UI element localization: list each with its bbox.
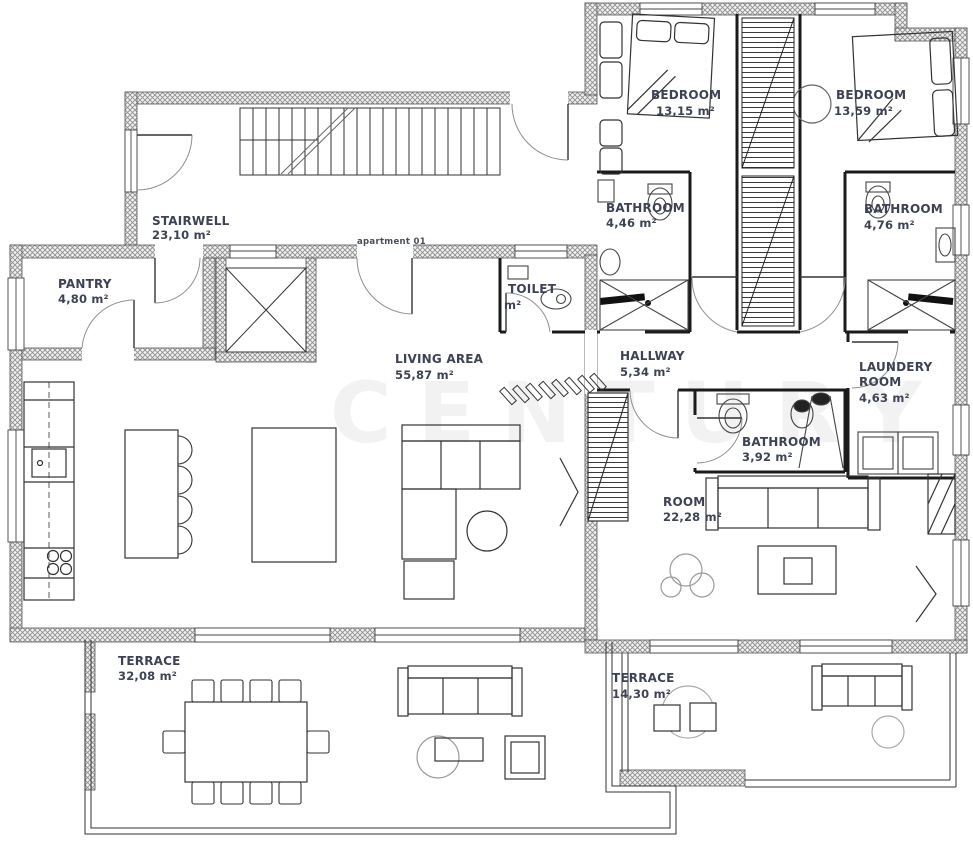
floor-plan: CENTURY — [0, 0, 973, 852]
label-terrace-2-area: 14,30 m² — [612, 687, 671, 701]
bar-stools — [178, 436, 192, 554]
wall-elevator-left — [216, 258, 226, 362]
terrace-2-furniture — [654, 664, 912, 748]
staircase — [240, 108, 500, 175]
kitchen — [24, 382, 192, 600]
label-bathroom-3-name: BATHROOM — [742, 435, 821, 449]
label-pantry-name: PANTRY — [58, 277, 112, 291]
terrace-1-furniture — [163, 666, 545, 804]
wall-terrace-stub-1 — [85, 642, 95, 692]
label-bedroom-2-name: BEDROOM — [836, 88, 906, 102]
tv — [560, 458, 578, 526]
label-bedroom-1-area: 13,15 m² — [656, 104, 715, 118]
apartment-label: apartment 01 — [357, 237, 426, 247]
wall-elevator-bottom — [216, 352, 316, 362]
cooktop — [48, 551, 72, 575]
label-bathroom-2-area: 4,76 m² — [864, 218, 915, 232]
label-room-area: 22,28 m² — [663, 510, 722, 524]
label-toilet-name: TOILET — [508, 282, 557, 296]
label-living-area-area: 55,87 m² — [395, 368, 454, 382]
label-toilet-area: m² — [504, 298, 521, 312]
wall-room-bottom — [585, 640, 967, 653]
wall-pantry-right — [203, 258, 215, 355]
label-living-area-name: LIVING AREA — [395, 352, 484, 366]
label-hallway-name: HALLWAY — [620, 349, 685, 363]
kitchen-island — [125, 430, 178, 558]
label-bathroom-2-name: BATHROOM — [864, 202, 943, 216]
wall-terrace-stub-3 — [620, 770, 745, 786]
bedroom-2-furniture — [793, 31, 958, 142]
floor-plan-drawing: CENTURY — [0, 0, 973, 852]
label-bathroom-1-area: 4,46 m² — [606, 216, 657, 230]
wardrobes — [742, 18, 794, 326]
wall-terrace-stub-2 — [85, 714, 95, 790]
label-laundry-area: 4,63 m² — [859, 391, 910, 405]
label-bedroom-2-area: 13,59 m² — [834, 104, 893, 118]
label-terrace-1-name: TERRACE — [118, 654, 181, 668]
dining-set — [252, 428, 336, 562]
label-hallway-area: 5,34 m² — [620, 365, 671, 379]
label-laundry-name-line1: LAUNDERY — [859, 360, 932, 374]
terrace-table — [185, 702, 307, 782]
dining-table — [252, 428, 336, 562]
label-bathroom-3-area: 3,92 m² — [742, 450, 793, 464]
label-stairwell-name: STAIRWELL — [152, 214, 230, 228]
label-room-name: ROOM — [663, 495, 705, 509]
label-laundry-name-line2: ROOM — [859, 375, 901, 389]
label-stairwell-area: 23,10 m² — [152, 228, 211, 242]
tv — [916, 566, 936, 622]
label-terrace-1-area: 32,08 m² — [118, 669, 177, 683]
elevator — [226, 268, 306, 352]
label-pantry-area: 4,80 m² — [58, 292, 109, 306]
label-bedroom-1-name: BEDROOM — [651, 88, 721, 102]
label-bathroom-1-name: BATHROOM — [606, 201, 685, 215]
label-terrace-2-name: TERRACE — [612, 671, 675, 685]
wall-topright-left — [585, 3, 597, 95]
wall-upper — [10, 245, 597, 258]
wall-elevator-right — [306, 258, 316, 362]
